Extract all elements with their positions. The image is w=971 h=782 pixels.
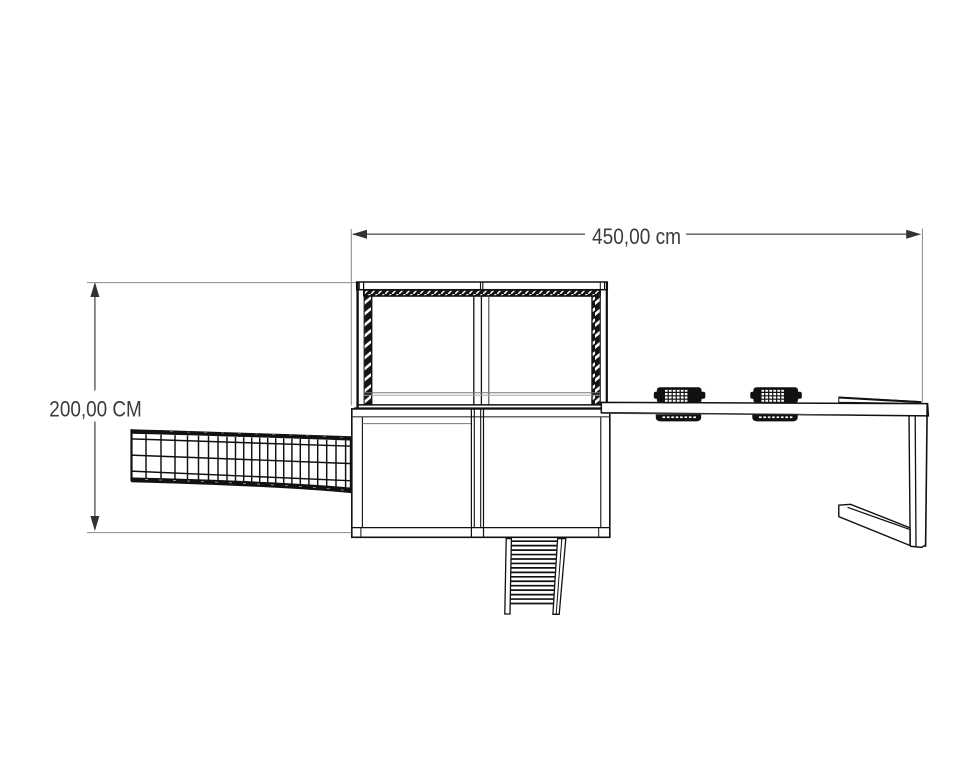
svg-text:200,00 CM: 200,00 CM [49,397,142,422]
svg-text:450,00 cm: 450,00 cm [592,224,681,249]
